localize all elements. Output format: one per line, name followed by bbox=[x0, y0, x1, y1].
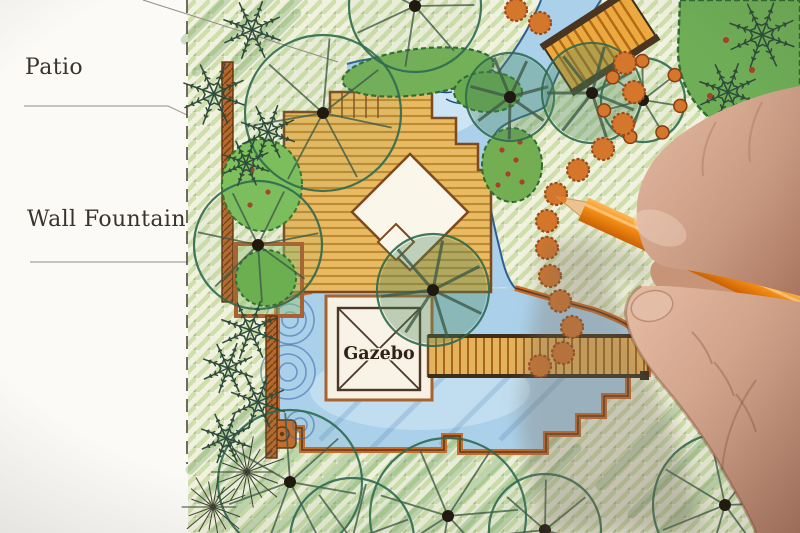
patio-label: Patio bbox=[25, 55, 83, 80]
plan-drawing: Gazebo bbox=[0, 0, 800, 533]
vignette bbox=[0, 0, 800, 533]
photo-of-landscape-plan: Gazebo bbox=[0, 0, 800, 533]
wall-fountain-label: Wall Fountain bbox=[27, 207, 186, 232]
